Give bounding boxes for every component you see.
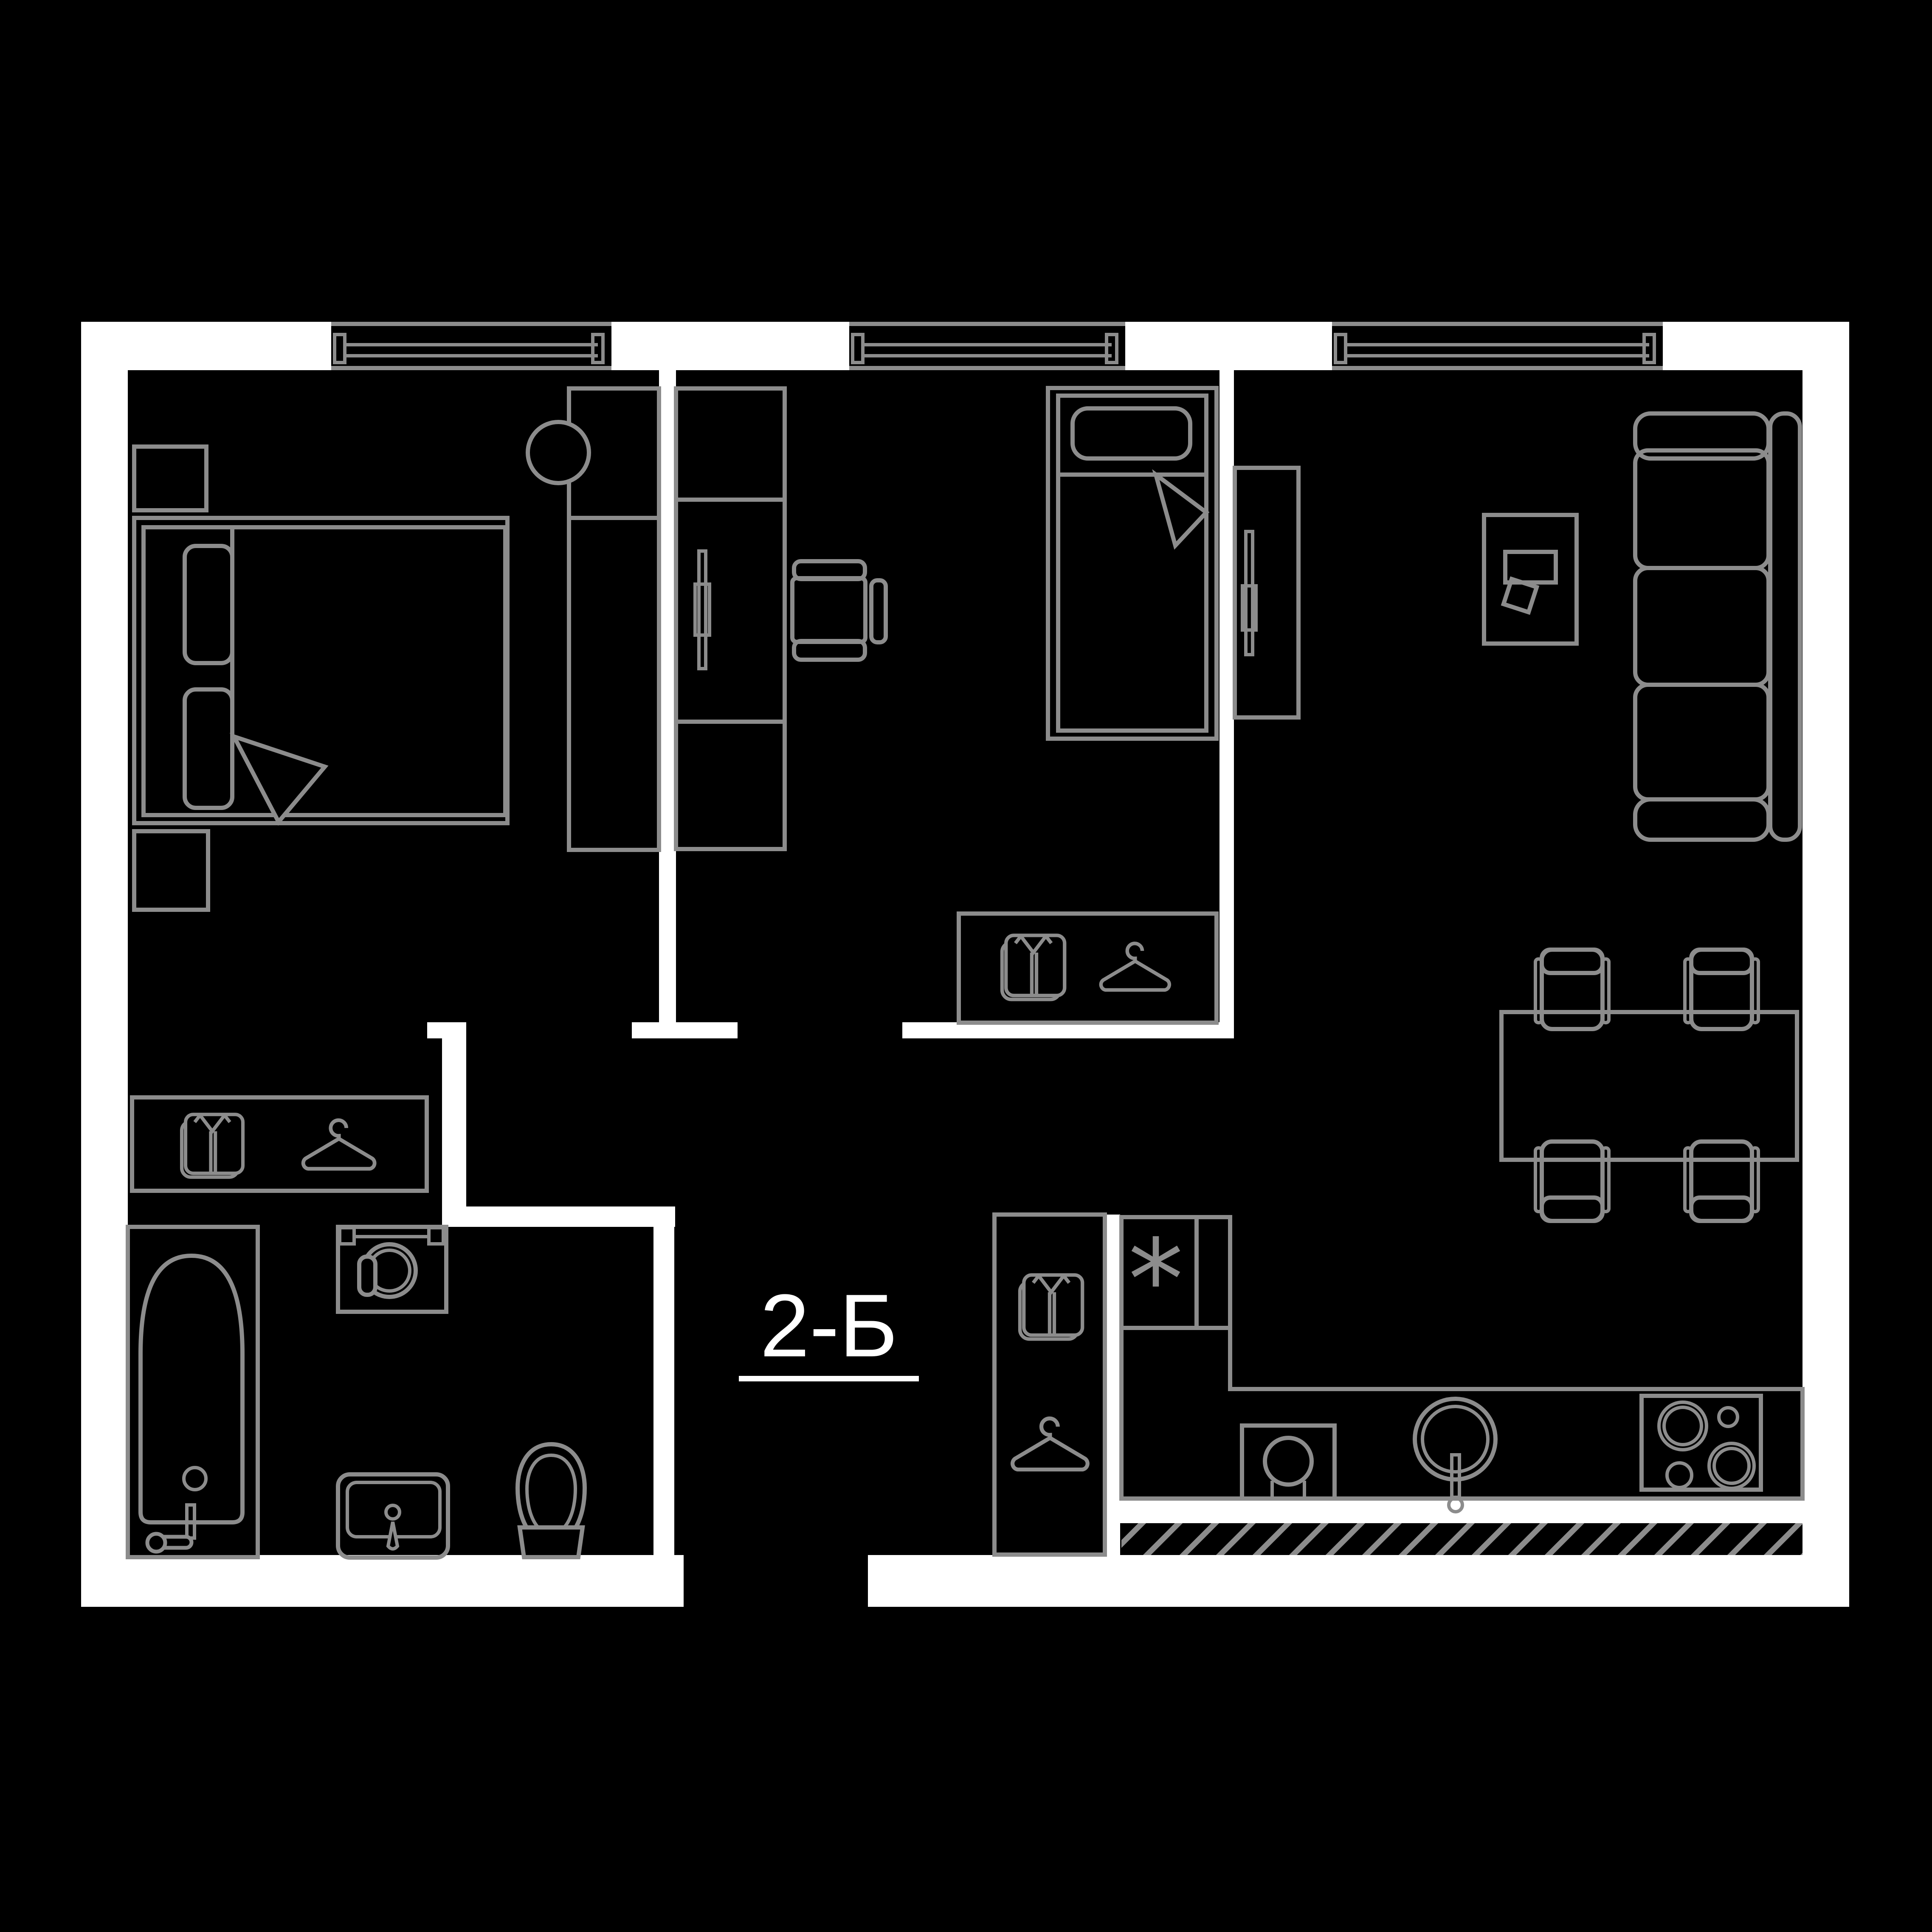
outer-wall-top-b: [611, 322, 849, 370]
dining-chair-top-right: [1685, 950, 1758, 1029]
wall-hallway-kitchen: [1105, 1215, 1120, 1556]
bathroom: [128, 1227, 585, 1558]
single-bed-mattress: [1058, 396, 1206, 731]
sofa: [1635, 413, 1800, 840]
hallway: 2-Б: [739, 1215, 1105, 1555]
wall-bathroom-right: [653, 1206, 674, 1556]
pillow-2: [185, 689, 232, 808]
bathroom-sink: [338, 1474, 448, 1558]
wall-bathroom-top: [442, 1206, 675, 1227]
chair-backrest: [871, 580, 886, 642]
outer-wall-right: [1802, 322, 1849, 1607]
sofa-cushion-2: [1635, 568, 1769, 685]
wall-bedroom-kidsroom: [659, 370, 676, 1038]
desk-chair: [792, 561, 886, 660]
outer-wall-top-a: [81, 322, 331, 370]
kitchen-counter: [1121, 1217, 1802, 1499]
single-bed-blanket-fold: [1156, 475, 1206, 546]
bathtub: [128, 1227, 258, 1557]
coffee-table: [1484, 515, 1577, 644]
freezer-symbol: *: [1128, 1216, 1183, 1344]
balcony-hatch: [1121, 1523, 1802, 1555]
outer-wall-bottom-right: [868, 1555, 1849, 1607]
bedroom: [132, 388, 659, 1191]
window-living: [1332, 324, 1663, 368]
window-kidsroom: [849, 324, 1125, 368]
outer-wall-left: [81, 322, 128, 1607]
floor-plan: * 2-Б: [0, 0, 1932, 1932]
blanket-fold: [234, 737, 325, 822]
double-bed-frame: [134, 518, 507, 823]
kidsroom-closet: [959, 914, 1217, 1023]
wall-kidsroom-living: [1219, 370, 1234, 1038]
kids-room: [676, 388, 1217, 1023]
dining-table: [1501, 1012, 1797, 1160]
stove: [1642, 1396, 1761, 1490]
shirt-icon: [182, 1114, 243, 1177]
nightstand-bottom: [134, 831, 208, 910]
sofa-cushion-1: [1635, 450, 1769, 568]
dining-chair-top-left: [1535, 950, 1609, 1029]
single-bed-pillow: [1073, 408, 1190, 458]
washing-machine: [338, 1227, 446, 1312]
dining-chair-bottom-left: [1535, 1142, 1609, 1221]
windows: [331, 324, 1663, 368]
sofa-armrest-bottom: [1635, 799, 1769, 840]
sofa-backrest: [1770, 413, 1800, 840]
window-bedroom: [331, 324, 611, 368]
kitchen-sink: [1415, 1399, 1495, 1512]
wall-nook-hallway: [442, 1022, 466, 1206]
walls: [81, 322, 1849, 1607]
toilet: [518, 1444, 585, 1557]
living-wardrobe-handle: [1246, 532, 1253, 655]
unit-label-underline: [739, 1376, 919, 1381]
shirt-icon: [1002, 935, 1065, 999]
oven-cabinet: [1242, 1426, 1335, 1499]
outer-wall-bottom-left: [81, 1555, 684, 1607]
unit-label: 2-Б: [760, 1276, 898, 1375]
hanger-icon: [1013, 1418, 1088, 1469]
pillow-1: [185, 546, 232, 663]
living-room: [1235, 413, 1800, 1221]
shelf-handle: [699, 551, 706, 669]
chair-seat: [792, 578, 865, 642]
double-bed-mattress: [144, 527, 505, 815]
wall-bedroom-door-jamb: [632, 1022, 738, 1038]
hanger-icon: [1101, 943, 1169, 990]
shirt-icon: [1020, 1275, 1082, 1339]
bedroom-closet: [132, 1097, 427, 1191]
outer-wall-top-c: [1125, 322, 1332, 370]
kidsroom-shelf: [676, 388, 785, 849]
hanger-icon: [303, 1120, 375, 1169]
sofa-cushion-3: [1635, 685, 1769, 799]
floor-plan-drawing: * 2-Б: [0, 0, 1932, 1932]
hallway-wardrobe: [994, 1215, 1105, 1555]
dining-chair-bottom-right: [1685, 1142, 1758, 1221]
coffee-table-deco: [1504, 579, 1537, 612]
bedroom-stool: [528, 422, 589, 483]
nightstand-top: [134, 447, 206, 510]
